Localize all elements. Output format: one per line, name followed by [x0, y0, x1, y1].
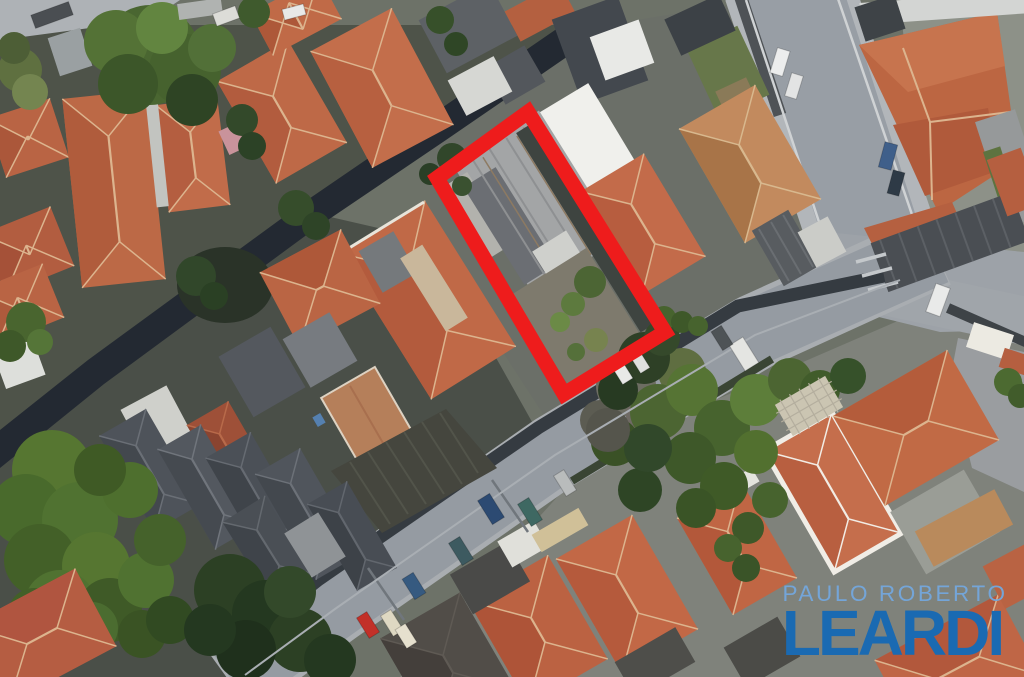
svg-text:LEARDI: LEARDI: [782, 597, 1002, 669]
